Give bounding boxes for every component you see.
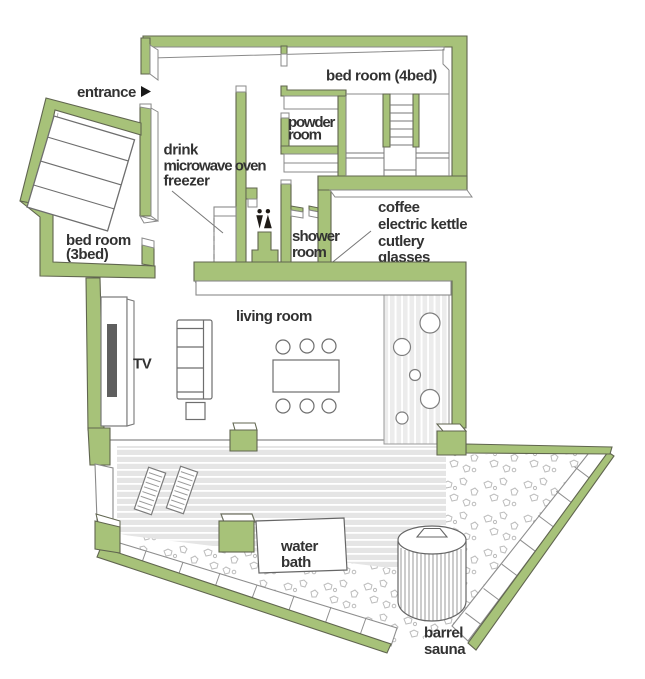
svg-text:coffee: coffee (378, 199, 420, 216)
svg-text:room: room (288, 127, 322, 144)
svg-text:room: room (292, 244, 326, 261)
svg-text:drink: drink (164, 142, 200, 159)
svg-text:sauna: sauna (424, 641, 466, 658)
svg-text:cutlery: cutlery (378, 233, 425, 250)
svg-text:water: water (280, 538, 319, 555)
svg-text:freezer: freezer (164, 173, 211, 190)
svg-text:electric kettle: electric kettle (378, 216, 467, 233)
svg-text:bath: bath (281, 554, 311, 571)
svg-text:living room: living room (236, 308, 312, 325)
svg-text:entrance: entrance (77, 84, 136, 101)
svg-text:bed room (4bed): bed room (4bed) (326, 68, 437, 85)
svg-text:shower: shower (292, 228, 340, 245)
svg-text:(3bed): (3bed) (66, 246, 109, 263)
svg-text:barrel: barrel (424, 625, 463, 642)
svg-text:TV: TV (133, 356, 152, 373)
